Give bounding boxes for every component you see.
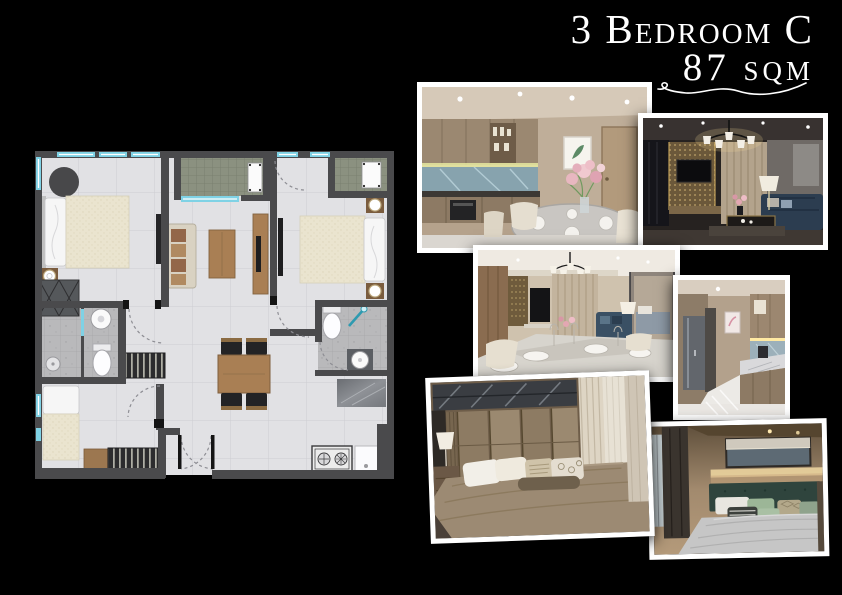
brochure-page: 3 Bedroom C 87 sqm [0,0,842,595]
kitchen-corridor-photo [673,275,790,420]
kitchen-and-dining-image [422,87,647,248]
ac-unit-center [248,163,262,192]
unit-area-title: 87 sqm [571,50,814,86]
living-room-image [643,118,823,245]
page-title: 3 Bedroom C 87 sqm [571,8,814,98]
living-room-photo [638,113,828,250]
dining-and-living-photo [473,245,680,382]
second-bedroom-image [652,423,825,555]
floor-plan-drawing [30,147,405,485]
ac-unit-right [362,162,381,188]
kitchen-fixtures [312,446,378,472]
kitchen-corridor-image [678,280,785,415]
kitchen-and-dining-photo [417,82,652,253]
master-bedroom-image [430,375,649,538]
second-bedroom-photo [647,418,830,560]
marble-floor [337,379,386,407]
unit-type-title: 3 Bedroom C [571,8,814,50]
floor-plan [30,147,405,485]
dining-and-living-image [478,250,675,377]
master-bedroom-photo [425,370,655,544]
